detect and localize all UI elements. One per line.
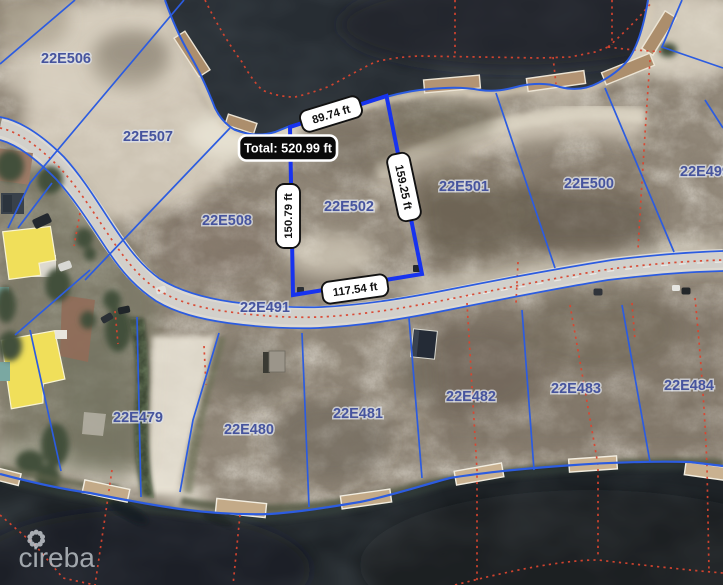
svg-text:22E484: 22E484	[664, 378, 714, 394]
svg-text:22E481: 22E481	[333, 406, 383, 422]
svg-text:22E501: 22E501	[439, 179, 489, 195]
svg-text:22E502: 22E502	[324, 199, 374, 215]
svg-text:22E479: 22E479	[113, 410, 163, 426]
svg-text:cireba: cireba	[19, 542, 96, 573]
svg-text:150.79 ft: 150.79 ft	[283, 193, 295, 239]
svg-text:22E480: 22E480	[224, 422, 274, 438]
svg-text:22E499: 22E499	[680, 164, 723, 180]
svg-text:22E507: 22E507	[123, 129, 173, 145]
svg-text:Total: 520.99 ft: Total: 520.99 ft	[244, 142, 333, 156]
svg-text:22E500: 22E500	[564, 176, 614, 192]
svg-text:22E491: 22E491	[240, 300, 290, 316]
svg-text:22E508: 22E508	[202, 213, 252, 229]
svg-text:22E482: 22E482	[446, 389, 496, 405]
svg-text:22E506: 22E506	[41, 51, 91, 67]
svg-text:22E483: 22E483	[551, 381, 601, 397]
